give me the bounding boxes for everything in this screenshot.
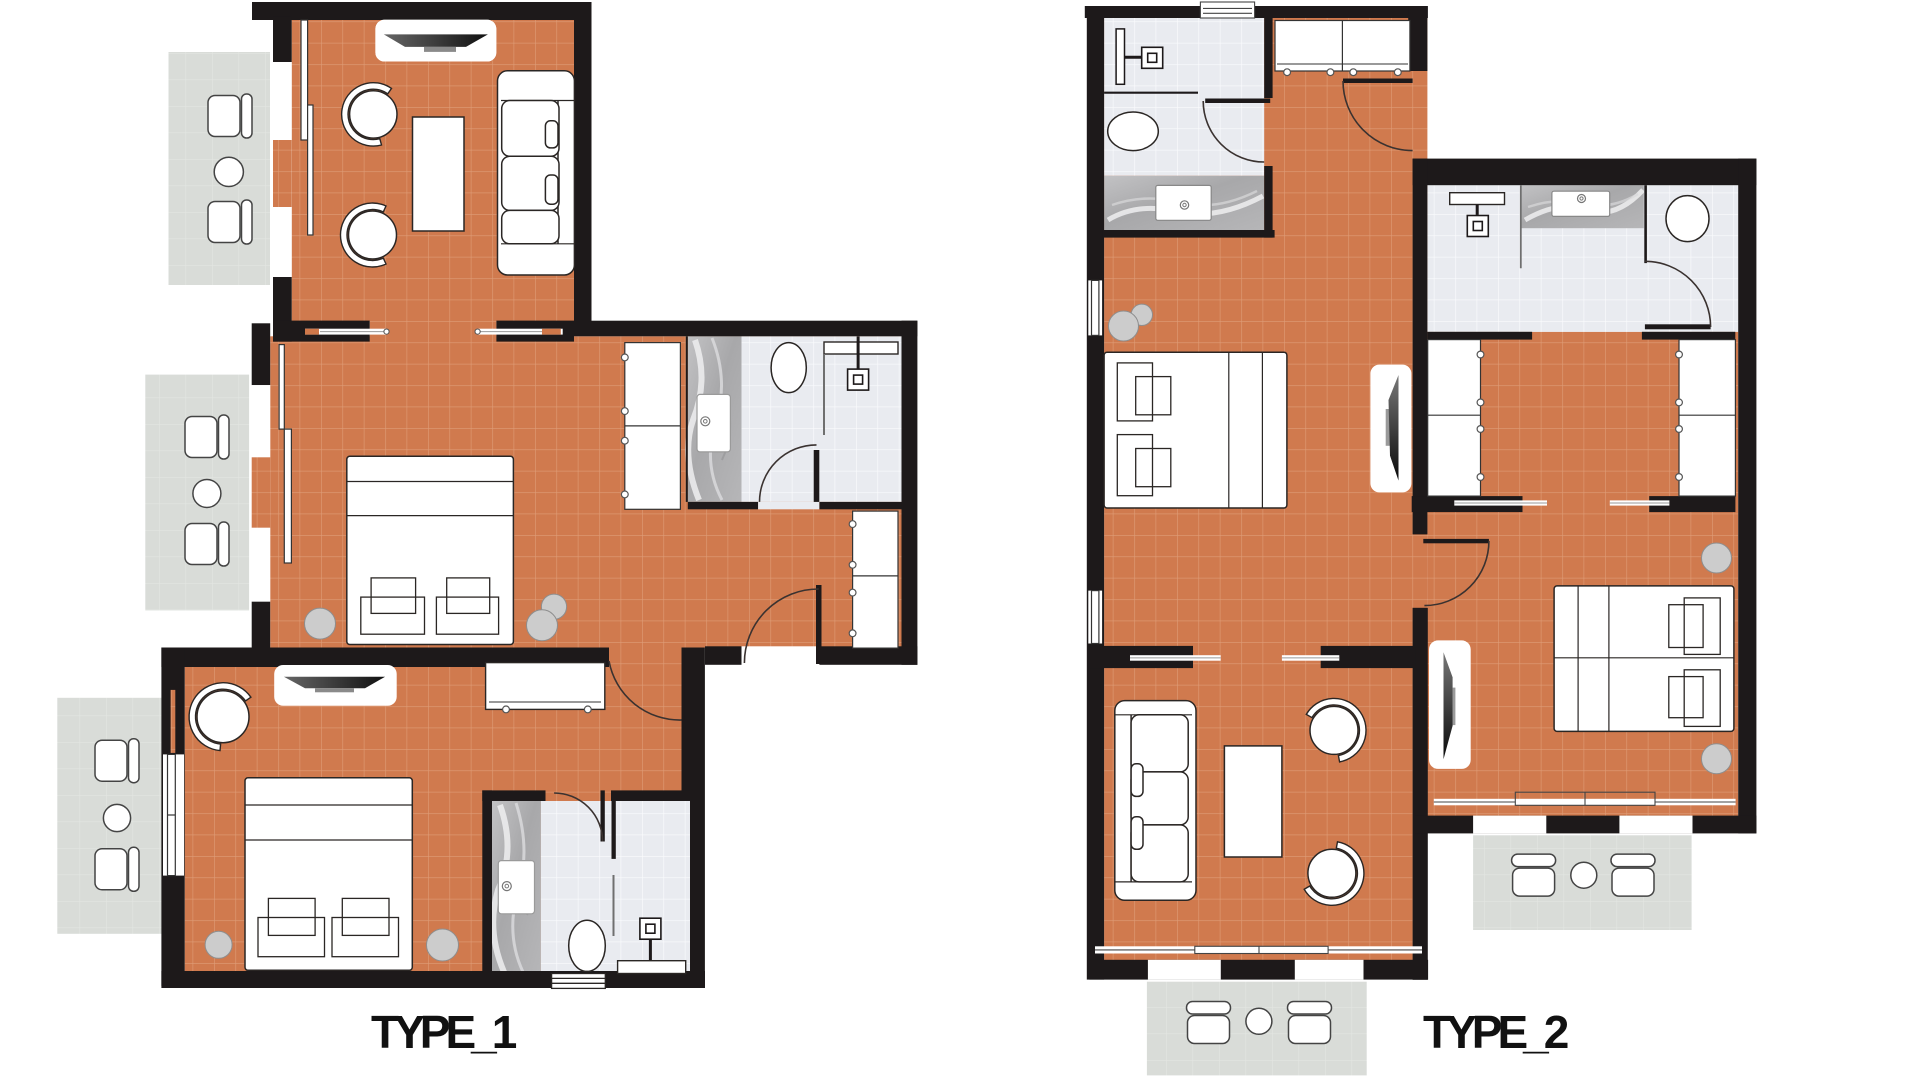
svg-text:TYPE_1: TYPE_1 bbox=[371, 1006, 517, 1058]
svg-text:TYPE_2: TYPE_2 bbox=[1423, 1006, 1568, 1058]
